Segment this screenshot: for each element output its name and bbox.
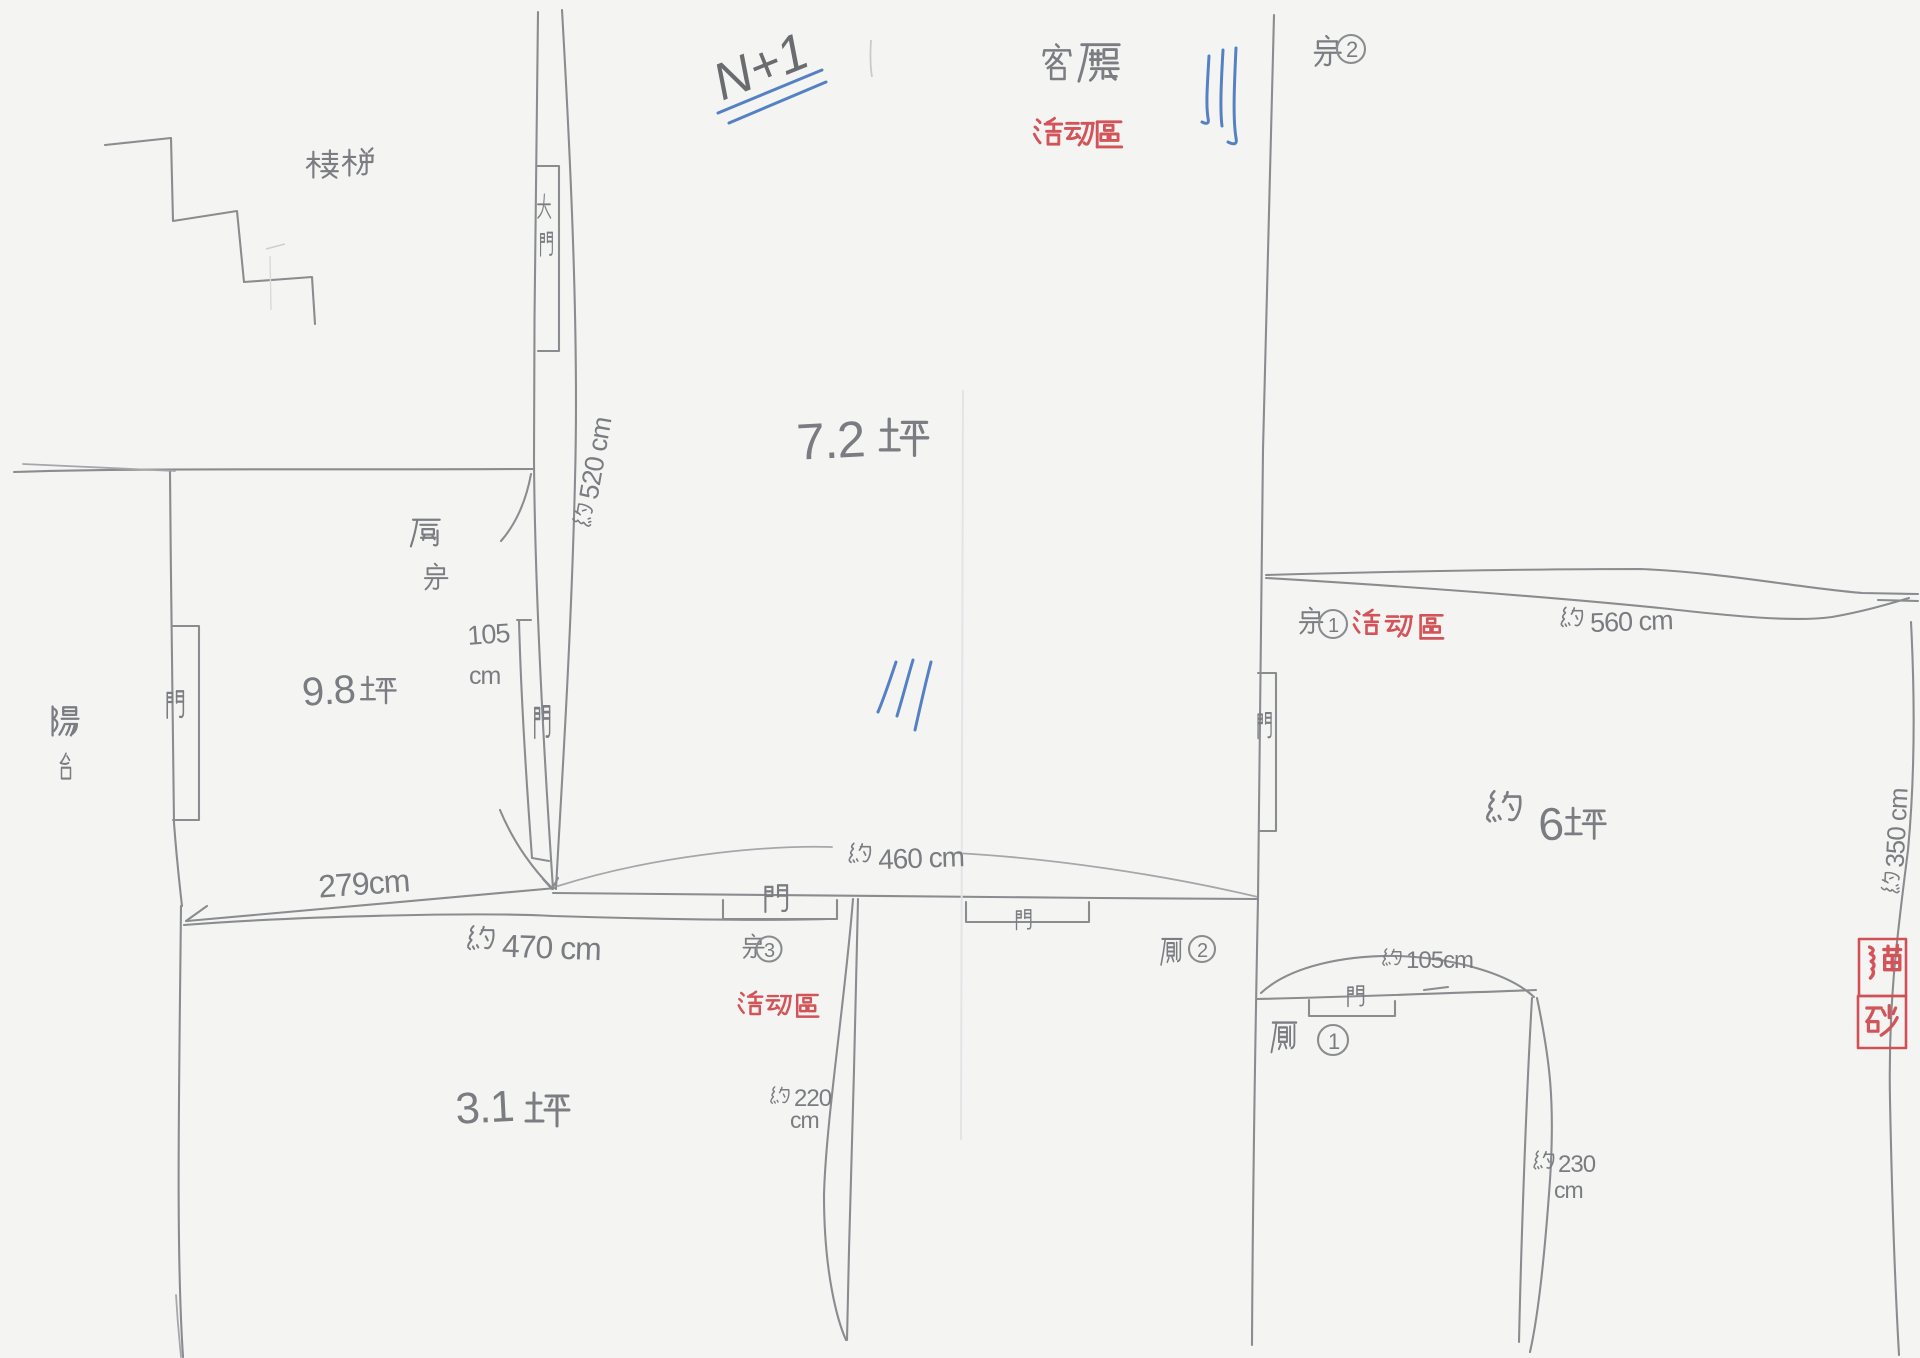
- svg-text:2: 2: [1346, 37, 1358, 62]
- svg-text:230: 230: [1558, 1151, 1596, 1178]
- svg-text:cm: cm: [469, 662, 501, 690]
- svg-text:470 cm: 470 cm: [501, 928, 601, 967]
- svg-text:560 cm: 560 cm: [1590, 605, 1674, 638]
- svg-text:350 cm: 350 cm: [1879, 788, 1913, 869]
- svg-text:7.2: 7.2: [795, 410, 866, 470]
- svg-text:3.1: 3.1: [454, 1082, 515, 1134]
- svg-text:3: 3: [764, 940, 775, 962]
- svg-text:1: 1: [1328, 1029, 1340, 1054]
- svg-text:cm: cm: [1554, 1177, 1583, 1203]
- svg-text:6: 6: [1536, 797, 1564, 851]
- svg-text:cm: cm: [790, 1107, 819, 1133]
- svg-text:105cm: 105cm: [1406, 947, 1473, 974]
- svg-text:460 cm: 460 cm: [878, 841, 965, 875]
- svg-text:1: 1: [1328, 615, 1339, 637]
- svg-text:279cm: 279cm: [317, 862, 410, 904]
- svg-text:9.8: 9.8: [301, 667, 357, 715]
- svg-text:2: 2: [1197, 940, 1208, 962]
- svg-text:105: 105: [466, 618, 510, 651]
